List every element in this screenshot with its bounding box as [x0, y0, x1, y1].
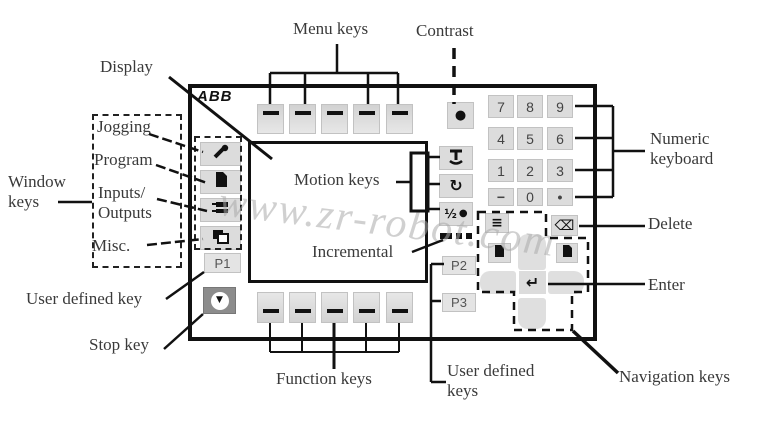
- user-defined-key-label: User defined key: [26, 289, 142, 309]
- jogging-label: Jogging: [97, 117, 151, 137]
- num-key-decimal: •: [547, 188, 573, 206]
- outputs-label-line2: Outputs: [98, 203, 152, 223]
- num-key-8: 8: [517, 95, 543, 118]
- display-label: Display: [100, 57, 153, 77]
- menu-key-2: [289, 104, 316, 134]
- function-key-5: [386, 292, 413, 323]
- numeric-label-line1: Numeric: [650, 129, 713, 149]
- delete-label: Delete: [648, 214, 692, 234]
- program-label: Program: [94, 150, 153, 170]
- window-keys-label: Window keys: [8, 172, 66, 212]
- key-dash: [392, 309, 408, 313]
- num-key-7: 7: [488, 95, 514, 118]
- motion-reorient-icon: ↻: [449, 178, 462, 194]
- navigation-keys-label: Navigation keys: [619, 367, 730, 387]
- stop-symbol: ▼: [216, 296, 223, 305]
- num-key-0: 0: [517, 188, 543, 206]
- menu-keys-label: Menu keys: [293, 19, 368, 39]
- numeric-keyboard-label: Numeric keyboard: [650, 129, 713, 169]
- key-dash: [327, 309, 343, 313]
- function-key-2: [289, 292, 316, 323]
- motion-key-linear: [439, 146, 473, 170]
- enter-label: Enter: [648, 275, 685, 295]
- p1-key: P1: [204, 253, 241, 273]
- arrow-down-key: [518, 298, 546, 329]
- menu-key-1: [257, 104, 284, 134]
- p3-key: P3: [442, 293, 476, 312]
- motion-key-reorient: ↻: [439, 174, 473, 198]
- p2-key: P2: [442, 256, 476, 275]
- key-dash: [263, 111, 279, 115]
- function-key-3: [321, 292, 348, 323]
- num-key-3: 3: [547, 159, 573, 182]
- num-key-2: 2: [517, 159, 543, 182]
- key-dash: [295, 111, 311, 115]
- num-key-9: 9: [547, 95, 573, 118]
- stop-key: ▼: [203, 287, 236, 314]
- abb-logo: ABB: [197, 88, 233, 105]
- page-icon: [562, 244, 573, 263]
- menu-key-3: [321, 104, 348, 134]
- num-key-5: 5: [517, 127, 543, 150]
- enter-icon: ↵: [526, 275, 539, 291]
- num-key-6: 6: [547, 127, 573, 150]
- inputs-label-line1: Inputs/: [98, 183, 152, 203]
- menu-key-4: [353, 104, 380, 134]
- page-key-right: [556, 243, 578, 263]
- num-key-minus: −: [488, 188, 514, 206]
- function-key-1: [257, 292, 284, 323]
- incremental-label: Incremental: [312, 242, 393, 262]
- key-dash: [359, 309, 375, 313]
- key-dash: [295, 309, 311, 313]
- stop-key-label: Stop key: [89, 335, 149, 355]
- function-key-4: [353, 292, 380, 323]
- contrast-label: Contrast: [416, 21, 474, 41]
- arrow-right-key: [548, 271, 584, 294]
- contrast-icon: ●: [455, 109, 466, 122]
- key-dash: [327, 111, 343, 115]
- key-dash: [392, 111, 408, 115]
- user-defined-keys-label: User defined keys: [447, 361, 534, 401]
- motion-keys-label: Motion keys: [294, 170, 379, 190]
- user-defined-keys-line1: User defined: [447, 361, 534, 381]
- enter-key: ↵: [519, 271, 546, 294]
- window-keys-label-line1: Window: [8, 172, 66, 192]
- numeric-label-line2: keyboard: [650, 149, 713, 169]
- window-keys-label-line2: keys: [8, 192, 66, 212]
- teach-pendant-diagram: ABB ● P1 ▼ ↻ ½ ● P: [0, 0, 762, 423]
- num-key-4: 4: [488, 127, 514, 150]
- arrow-left-key: [480, 271, 516, 294]
- user-defined-keys-line2: keys: [447, 381, 534, 401]
- key-dash: [359, 111, 375, 115]
- motion-linear-icon: [446, 147, 466, 170]
- function-keys-label: Function keys: [276, 369, 372, 389]
- key-dash: [263, 309, 279, 313]
- stop-icon: ▼: [211, 292, 229, 310]
- num-key-1: 1: [488, 159, 514, 182]
- inputs-outputs-label: Inputs/ Outputs: [98, 183, 152, 223]
- misc-label: Misc.: [92, 236, 130, 256]
- menu-key-5: [386, 104, 413, 134]
- contrast-key: ●: [447, 102, 474, 129]
